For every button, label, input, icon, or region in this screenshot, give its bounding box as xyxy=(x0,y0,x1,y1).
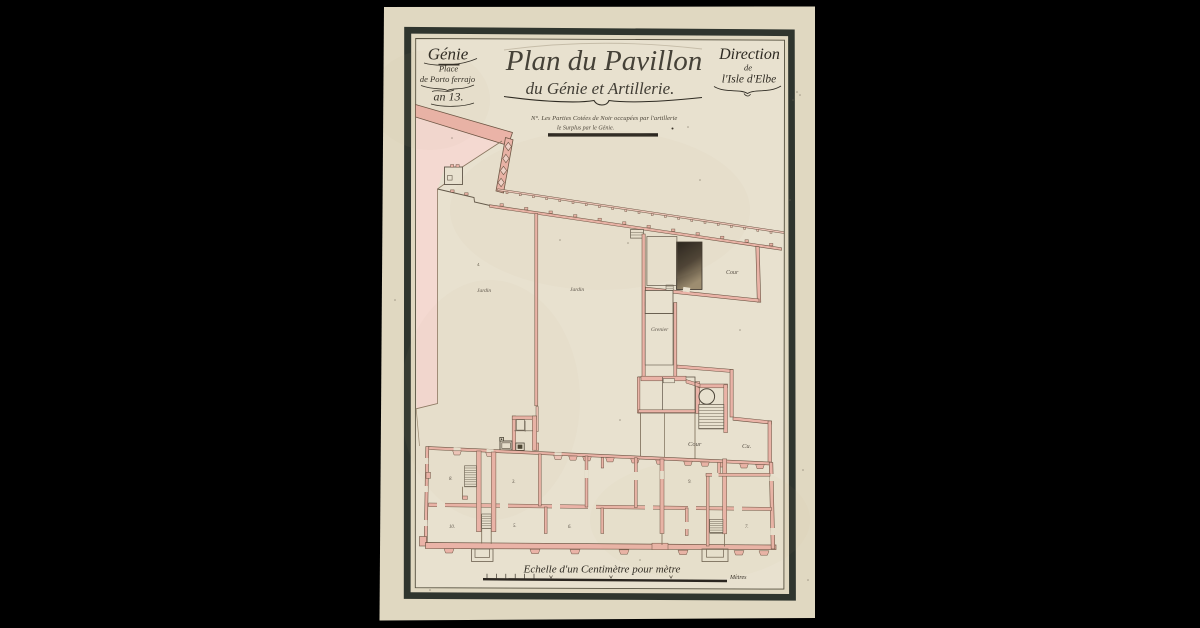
svg-text:4.: 4. xyxy=(477,262,480,267)
svg-text:Cu.: Cu. xyxy=(742,443,752,450)
svg-text:de: de xyxy=(744,63,752,73)
svg-text:Plan du Pavillon: Plan du Pavillon xyxy=(505,45,703,77)
svg-text:6.: 6. xyxy=(568,525,572,530)
svg-text:Direction: Direction xyxy=(718,46,780,63)
svg-text:l'Isle d'Elbe: l'Isle d'Elbe xyxy=(722,74,776,86)
svg-text:du Génie et Artillerie.: du Génie et Artillerie. xyxy=(526,79,675,98)
svg-text:Cour: Cour xyxy=(726,270,739,276)
svg-text:10.: 10. xyxy=(449,525,455,530)
svg-text:Cour: Cour xyxy=(688,441,702,448)
svg-text:Grenier: Grenier xyxy=(651,327,669,333)
svg-text:N°. Les Parties Cotées de Noi: N°. Les Parties Cotées de Noir occupées … xyxy=(530,115,677,122)
svg-text:5.: 5. xyxy=(513,524,517,529)
